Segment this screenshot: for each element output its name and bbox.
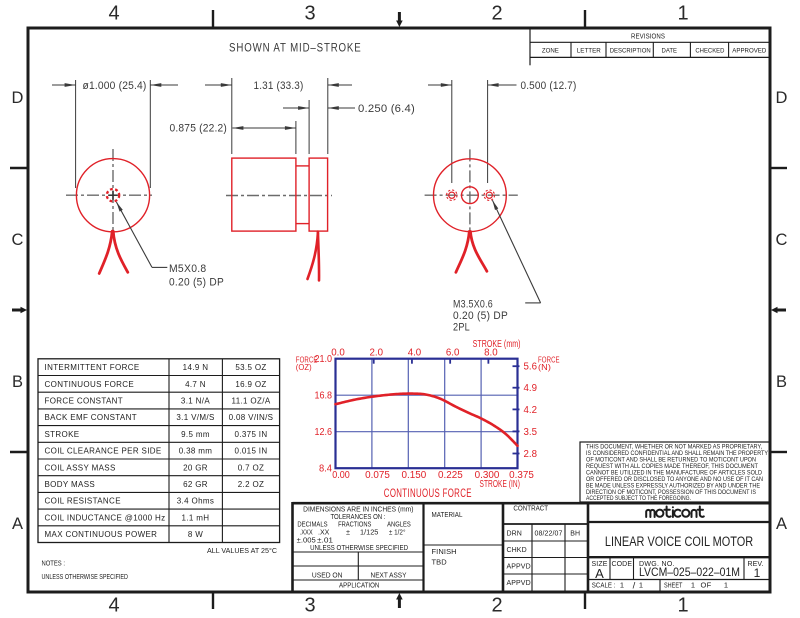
svg-text:53.5 OZ: 53.5 OZ: [235, 363, 266, 372]
svg-text:BH: BH: [570, 530, 580, 537]
svg-text:NOTES :: NOTES :: [42, 558, 66, 567]
svg-text:0.38 mm: 0.38 mm: [179, 447, 213, 456]
svg-text:0.875 (22.2): 0.875 (22.2): [170, 122, 228, 134]
svg-text:1.1 mH: 1.1 mH: [182, 513, 210, 522]
svg-text:0.500 (12.7): 0.500 (12.7): [521, 80, 577, 92]
svg-text:B: B: [12, 373, 23, 391]
svg-text:DESCRIPTION: DESCRIPTION: [610, 47, 651, 54]
svg-text:0.7 OZ: 0.7 OZ: [238, 463, 265, 472]
svg-text:0.08 V/IN/S: 0.08 V/IN/S: [229, 413, 274, 422]
svg-text:±: ±: [346, 527, 350, 536]
svg-text:0.0: 0.0: [331, 347, 345, 358]
svg-text:CONTRACT: CONTRACT: [513, 504, 548, 513]
svg-text:1: 1: [724, 581, 728, 590]
svg-text:APPVD: APPVD: [507, 580, 531, 587]
svg-text:(N): (N): [538, 362, 551, 372]
svg-text:1: 1: [639, 581, 643, 590]
svg-text:0.20 (5) DP: 0.20 (5) DP: [453, 310, 508, 322]
svg-text:8.4: 8.4: [319, 464, 332, 475]
svg-text:M5X0.8: M5X0.8: [169, 263, 207, 275]
svg-text:M3.5X0.6: M3.5X0.6: [453, 299, 493, 311]
svg-text:11.1 OZ/A: 11.1 OZ/A: [231, 396, 270, 405]
svg-text:LVCM–025–022–01M: LVCM–025–022–01M: [639, 565, 740, 579]
svg-text:BACK EMF CONSTANT: BACK EMF CONSTANT: [45, 413, 137, 422]
svg-text:CONTINUOUS FORCE: CONTINUOUS FORCE: [384, 488, 472, 500]
svg-text:4.2: 4.2: [524, 405, 538, 416]
svg-text:INTERMITTENT FORCE: INTERMITTENT FORCE: [45, 363, 140, 372]
svg-text:1: 1: [620, 581, 624, 590]
svg-text:A: A: [595, 566, 604, 581]
svg-text:COIL RESISTANCE: COIL RESISTANCE: [45, 497, 121, 506]
svg-text:ALL VALUES AT 25°C: ALL VALUES AT 25°C: [207, 546, 278, 555]
svg-text:DRN: DRN: [507, 530, 522, 537]
svg-text:4.7 N: 4.7 N: [185, 380, 206, 389]
svg-text:ZONE: ZONE: [542, 47, 559, 54]
svg-text:0.225: 0.225: [438, 470, 463, 481]
svg-text:APPROVED: APPROVED: [732, 47, 766, 54]
svg-text:CODE: CODE: [611, 561, 632, 568]
svg-text:2PL: 2PL: [453, 322, 470, 334]
svg-text:REVISIONS: REVISIONS: [631, 33, 665, 40]
svg-text:CHKD: CHKD: [507, 547, 527, 554]
svg-text:1: 1: [677, 3, 688, 25]
svg-text:2: 2: [491, 595, 502, 617]
svg-text:SHEET: SHEET: [664, 581, 683, 590]
svg-text:SCALE :: SCALE :: [592, 581, 616, 590]
svg-text:TBD: TBD: [432, 558, 448, 567]
svg-text:1: 1: [691, 581, 695, 590]
svg-text:4: 4: [108, 595, 119, 617]
svg-text:0.250 (6.4): 0.250 (6.4): [358, 103, 415, 115]
svg-text:2.0: 2.0: [369, 347, 383, 358]
svg-text:0.150: 0.150: [402, 470, 427, 481]
svg-text:3.5: 3.5: [524, 427, 538, 438]
svg-text:0.075: 0.075: [365, 470, 390, 481]
svg-text:MAX CONTINUOUS POWER: MAX CONTINUOUS POWER: [45, 530, 158, 539]
svg-text:FINISH: FINISH: [432, 547, 457, 556]
svg-text:4: 4: [108, 3, 119, 25]
svg-text:± 1/2°: ± 1/2°: [389, 527, 406, 536]
svg-text:1/125: 1/125: [360, 527, 378, 536]
svg-text:ACCEPTED SUBJECT TO THE FOREGO: ACCEPTED SUBJECT TO THE FOREGOING.: [586, 495, 691, 502]
svg-text:OF: OF: [700, 581, 711, 590]
svg-text:9.5 mm: 9.5 mm: [181, 430, 210, 439]
svg-text:0.00: 0.00: [332, 470, 350, 481]
svg-text:4.0: 4.0: [408, 347, 422, 358]
svg-text:UNLESS OTHERWISE SPECIFIED: UNLESS OTHERWISE SPECIFIED: [310, 543, 408, 552]
svg-text:A: A: [12, 515, 23, 533]
svg-text:BODY MASS: BODY MASS: [45, 480, 96, 489]
svg-text:LINEAR VOICE COIL MOTOR: LINEAR VOICE COIL MOTOR: [605, 534, 753, 549]
svg-text:APPLICATION: APPLICATION: [339, 580, 379, 589]
svg-text:UNLESS OTHERWISE SPECIFIED: UNLESS OTHERWISE SPECIFIED: [42, 572, 129, 581]
svg-text:3: 3: [304, 3, 315, 25]
svg-text:/: /: [633, 581, 636, 592]
svg-text:LETTER: LETTER: [577, 47, 601, 54]
svg-text:5.6: 5.6: [524, 362, 538, 373]
svg-text:CHECKED: CHECKED: [695, 47, 724, 54]
svg-text:16.8: 16.8: [315, 391, 333, 402]
svg-text:MATERIAL: MATERIAL: [432, 510, 463, 519]
svg-text:SHOWN AT MID–STROKE: SHOWN AT MID–STROKE: [229, 43, 362, 55]
svg-text:08/22/07: 08/22/07: [534, 530, 562, 537]
svg-text:3: 3: [304, 595, 315, 617]
svg-text:62 GR: 62 GR: [183, 480, 208, 489]
svg-text:4.9: 4.9: [524, 383, 538, 394]
svg-text:ø1.000 (25.4): ø1.000 (25.4): [83, 80, 147, 92]
svg-text:STROKE (mm): STROKE (mm): [473, 339, 521, 350]
svg-text:0.20 (5) DP: 0.20 (5) DP: [169, 276, 224, 288]
svg-text:DATE: DATE: [662, 47, 678, 54]
svg-text:1.31 (33.3): 1.31 (33.3): [254, 80, 304, 92]
svg-text:(OZ): (OZ): [296, 362, 312, 372]
svg-text:COIL CLEARANCE PER SIDE: COIL CLEARANCE PER SIDE: [45, 447, 162, 456]
svg-text:NEXT ASSY: NEXT ASSY: [371, 570, 407, 579]
svg-text:8 W: 8 W: [188, 530, 203, 539]
svg-text:D: D: [12, 89, 24, 107]
svg-text:3.4 Ohms: 3.4 Ohms: [177, 497, 214, 506]
svg-text:D: D: [776, 89, 788, 107]
svg-text:3.1 V/M/S: 3.1 V/M/S: [176, 413, 214, 422]
svg-text:C: C: [776, 231, 788, 249]
svg-text:1: 1: [754, 566, 761, 580]
svg-text:B: B: [776, 373, 787, 391]
svg-text:APPVD: APPVD: [507, 563, 531, 570]
svg-text:20 GR: 20 GR: [183, 463, 208, 472]
svg-text:12.6: 12.6: [315, 427, 333, 438]
svg-text:A: A: [776, 515, 787, 533]
svg-text:2.2 OZ: 2.2 OZ: [238, 480, 265, 489]
svg-text:0.015 IN: 0.015 IN: [234, 447, 267, 456]
svg-text:1: 1: [677, 595, 688, 617]
svg-text:C: C: [12, 231, 24, 249]
svg-text:COIL INDUCTANCE @1000 Hz: COIL INDUCTANCE @1000 Hz: [45, 513, 166, 522]
svg-text:2.8: 2.8: [524, 449, 538, 460]
svg-text:FORCE CONSTANT: FORCE CONSTANT: [45, 396, 124, 405]
svg-text:14.9 N: 14.9 N: [183, 363, 209, 372]
svg-text:COIL ASSY MASS: COIL ASSY MASS: [45, 463, 116, 472]
svg-text:STROKE (IN): STROKE (IN): [480, 479, 521, 490]
svg-text:6.0: 6.0: [446, 347, 460, 358]
svg-text:CONTINUOUS FORCE: CONTINUOUS FORCE: [45, 380, 135, 389]
svg-text:STROKE: STROKE: [45, 430, 80, 439]
svg-text:USED ON: USED ON: [312, 570, 343, 579]
svg-text:2: 2: [491, 3, 502, 25]
svg-text:0.375 IN: 0.375 IN: [234, 430, 267, 439]
svg-text:16.9 OZ: 16.9 OZ: [235, 380, 266, 389]
svg-text:3.1 N/A: 3.1 N/A: [181, 396, 210, 405]
